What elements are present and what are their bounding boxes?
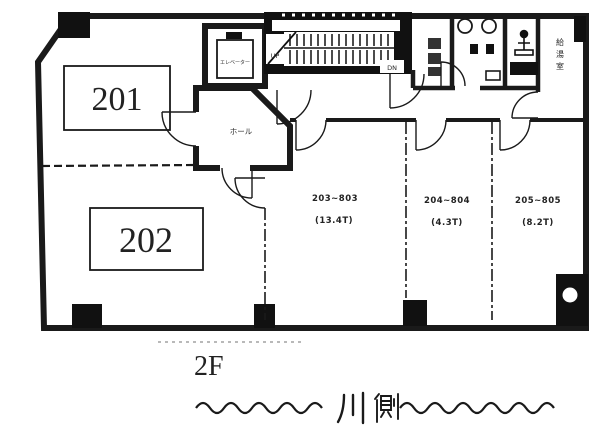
room-204-area: (4.3T) [431, 218, 463, 228]
room-205-range: 205~805 [515, 196, 561, 206]
elevator-car [217, 40, 253, 78]
stair-landing [272, 20, 400, 31]
utility-room: 給湯室 [556, 37, 565, 74]
room-202-number: 202 [119, 220, 173, 260]
elevator-label: エレベーター [220, 59, 250, 66]
kanji-kawa [338, 393, 363, 423]
stairs-down-label: DN [387, 64, 397, 72]
room-204-range: 204~804 [424, 196, 470, 206]
hall-bottom-door-gap [220, 164, 250, 172]
unit-201: 201 [64, 66, 170, 130]
floor-label: 2F [194, 351, 224, 382]
column-pillar [58, 12, 90, 38]
utility-room-label: 給湯室 [556, 37, 565, 74]
room-203-range: 203~803 [312, 194, 358, 204]
washbasin [482, 19, 496, 33]
washbasin [458, 19, 472, 33]
room-205-area: (8.2T) [522, 218, 554, 228]
column-pillar [403, 300, 427, 326]
wavy-line-right [400, 403, 554, 413]
hall-left-door-gap [192, 112, 200, 146]
room-203-area: (13.4T) [315, 216, 353, 226]
wavy-line-left [196, 403, 322, 413]
floor-plan-drawing: 201 202 ホール エレベーター UP DN [0, 0, 604, 436]
river-side-line [196, 393, 554, 423]
elevator-door-mark [226, 32, 242, 39]
pipe-shaft-pillar [556, 274, 588, 326]
kanji-gawa [375, 394, 398, 422]
stairs-up-label: UP [271, 52, 280, 60]
toilet-counter [510, 62, 538, 75]
floor-plan-page: 201 202 ホール エレベーター UP DN [0, 0, 604, 436]
hall-label: ホール [230, 127, 253, 136]
room-201-number: 201 [92, 81, 143, 118]
caption: 2F [194, 351, 554, 423]
kitchenette-fixtures [428, 38, 441, 76]
staircase: UP DN [264, 12, 412, 74]
unit-202: 202 [90, 208, 203, 270]
washroom-fixture [486, 71, 500, 80]
elevator: エレベーター [205, 26, 265, 86]
column-pillar [574, 16, 586, 42]
column-pillar [72, 304, 102, 328]
